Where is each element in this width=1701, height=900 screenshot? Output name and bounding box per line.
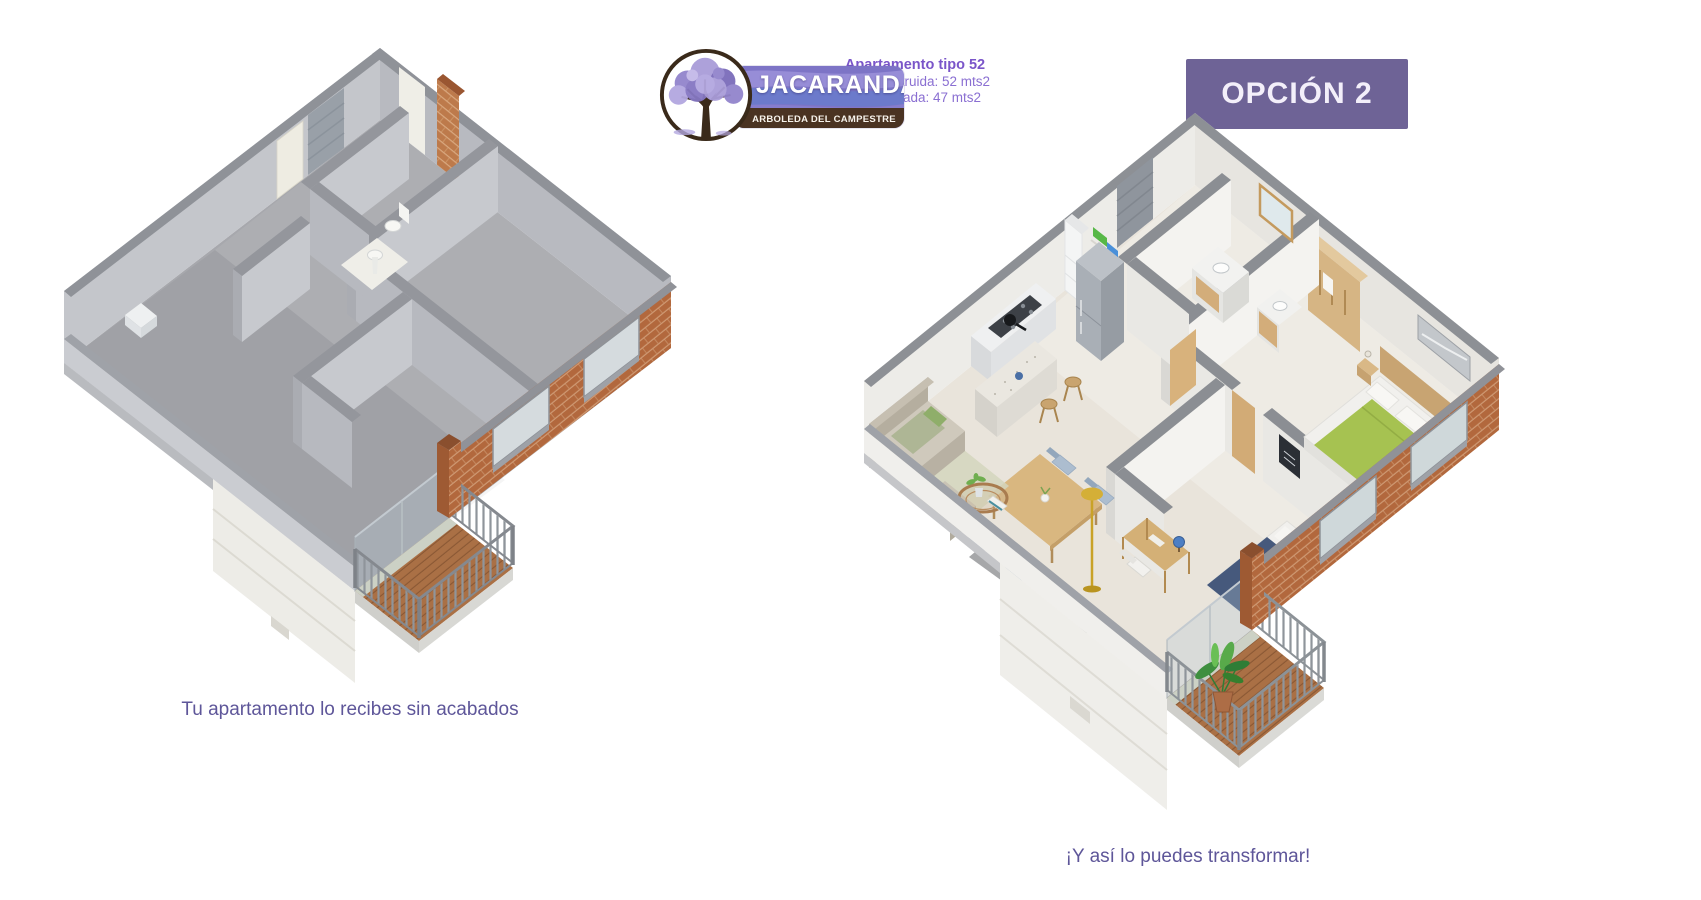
- page: JACARANDA ARBOLEDA DEL CAMPESTRE Apartam…: [0, 0, 1701, 900]
- brand-banner: JACARANDA ARBOLEDA DEL CAMPESTRE: [734, 66, 904, 128]
- floorplan-furnished-render: [755, 110, 1515, 830]
- globe: [1174, 537, 1185, 548]
- sink-pedestal: [372, 257, 378, 274]
- brick-pillar: [1240, 542, 1264, 630]
- blue-pot: [1015, 372, 1023, 380]
- fridge: [1076, 242, 1124, 361]
- caption-left: Tu apartamento lo recibes sin acabados: [100, 699, 600, 721]
- toilet-bowl: [385, 221, 401, 232]
- floorplan-unfinished-render: [25, 20, 725, 685]
- pan: [1004, 314, 1016, 326]
- brand-tagline: ARBOLEDA DEL CAMPESTRE: [748, 114, 900, 125]
- brick-pillar: [437, 434, 461, 518]
- plant-pot: [1213, 692, 1233, 712]
- caption-right: ¡Y así lo puedes transformar!: [938, 846, 1438, 868]
- jacaranda-tree-icon: [658, 46, 756, 144]
- brand-name: JACARANDA: [756, 71, 900, 100]
- brand-tagline-strip: ARBOLEDA DEL CAMPESTRE: [734, 108, 904, 128]
